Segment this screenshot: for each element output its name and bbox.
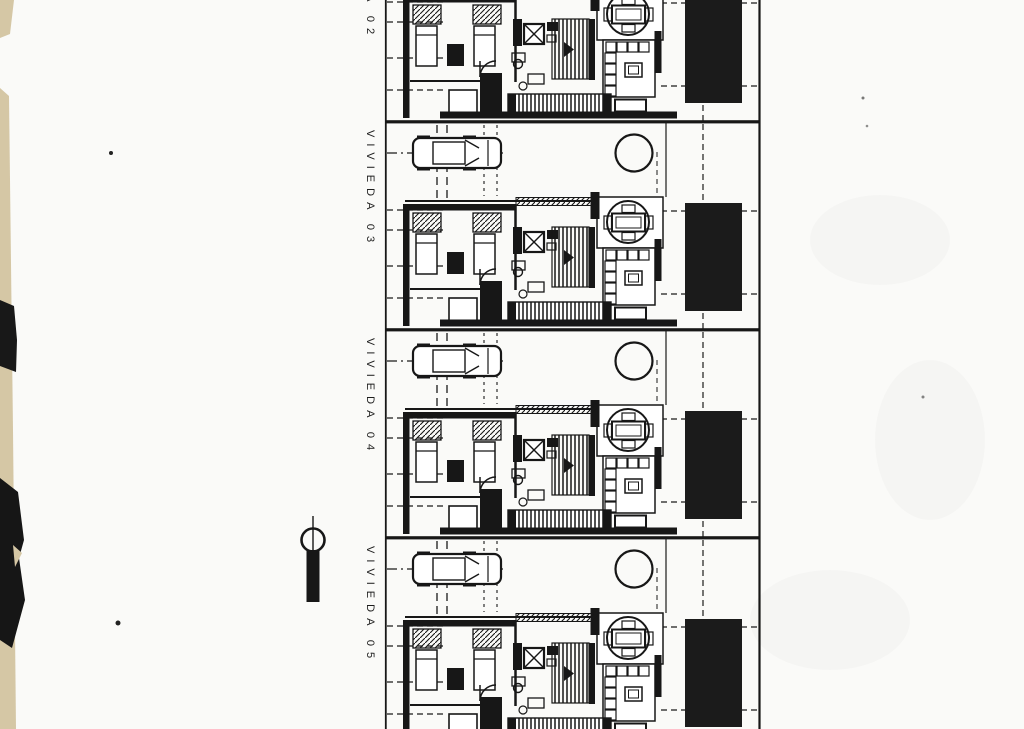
scan-blotches xyxy=(750,195,985,670)
ink-blob xyxy=(0,300,17,372)
ink-blob xyxy=(0,478,25,648)
scanned-floor-plan-page: VIVIEDA 02VIVIEDA 03VIVIEDA 04VIVIEDA 05 xyxy=(0,0,1024,729)
unit-plan-vivieda-03 xyxy=(385,120,760,329)
paper-edge xyxy=(0,0,25,729)
unit-plan-vivieda-05 xyxy=(385,536,760,729)
unit-plan-vivieda-02 xyxy=(385,0,760,121)
floor-plan-drawing xyxy=(0,0,1024,729)
survey-marker-icon xyxy=(302,516,325,602)
ink-specks xyxy=(109,97,925,626)
unit-plan-vivieda-04 xyxy=(385,328,760,537)
